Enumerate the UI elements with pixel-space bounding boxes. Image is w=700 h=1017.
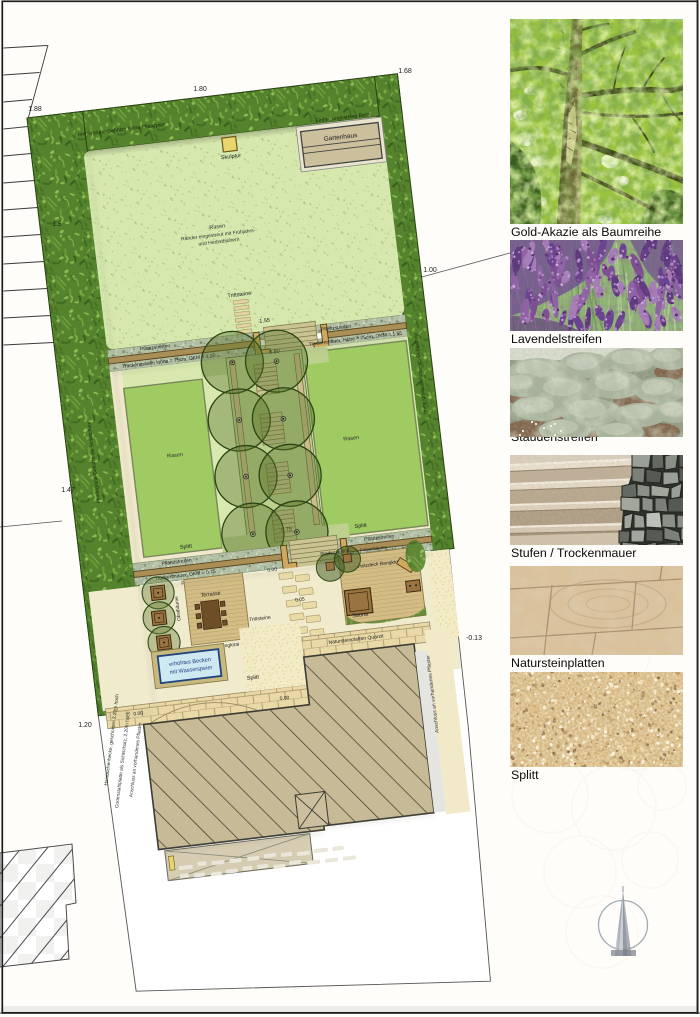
svg-text:1.5: 1.5 xyxy=(52,221,61,228)
svg-text:0.00: 0.00 xyxy=(133,710,144,717)
svg-text:Lavendelstreifen: Lavendelstreifen xyxy=(511,332,602,346)
svg-text:1.80: 1.80 xyxy=(193,86,207,93)
svg-text:0.05: 0.05 xyxy=(295,596,306,603)
svg-text:1.55: 1.55 xyxy=(259,318,270,325)
svg-text:-0.13: -0.13 xyxy=(466,635,482,642)
svg-text:1.00: 1.00 xyxy=(423,267,437,274)
svg-text:0.00: 0.00 xyxy=(279,695,290,702)
svg-text:Gold-Akazie als Baumreihe: Gold-Akazie als Baumreihe xyxy=(511,225,661,239)
svg-text:1.20: 1.20 xyxy=(78,722,92,729)
svg-text:Natursteinplatten: Natursteinplatten xyxy=(511,656,605,670)
svg-text:Stufen / Trockenmauer: Stufen / Trockenmauer xyxy=(511,546,636,560)
svg-text:Splitt: Splitt xyxy=(511,768,539,782)
svg-text:1.88: 1.88 xyxy=(28,106,42,113)
svg-text:1.68: 1.68 xyxy=(398,68,412,75)
svg-text:1.47: 1.47 xyxy=(61,487,75,494)
